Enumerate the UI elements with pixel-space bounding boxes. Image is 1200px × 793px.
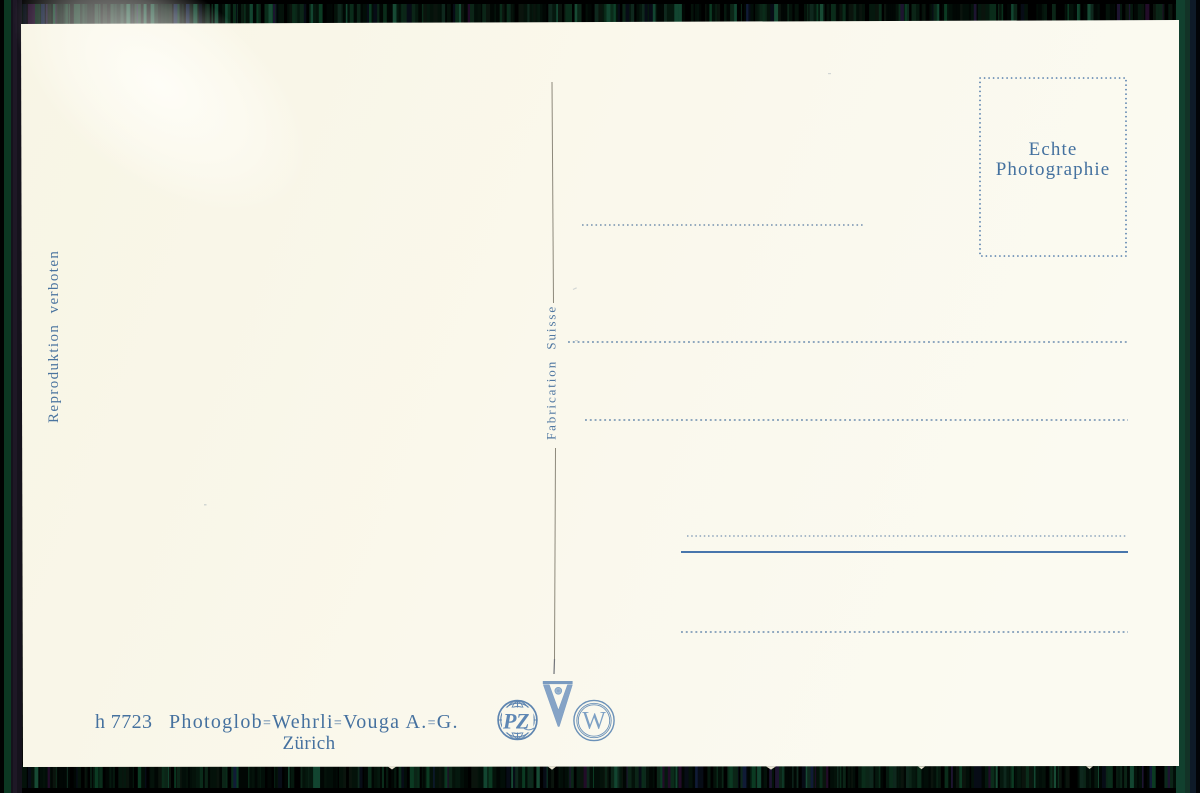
svg-text:Fabrication Suisse: Fabrication Suisse [544,305,559,440]
svg-text:h 7723: h 7723 [95,711,152,733]
svg-text:Echte: Echte [1029,139,1078,160]
svg-text:W: W [582,708,606,735]
svg-text:Photographie: Photographie [996,159,1111,180]
svg-text:PZ: PZ [502,709,529,734]
svg-text:Zürich: Zürich [282,733,335,754]
svg-text:Photoglob=Wehrli=Vouga A.=G.: Photoglob=Wehrli=Vouga A.=G. [169,711,459,733]
svg-text:Reproduktion verboten: Reproduktion verboten [46,250,62,423]
